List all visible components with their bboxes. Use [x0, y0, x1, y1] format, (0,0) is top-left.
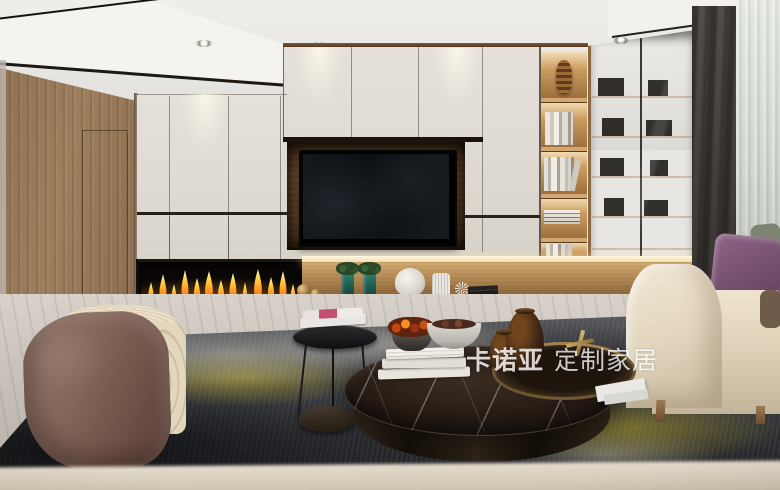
glass-reflection — [588, 30, 695, 265]
vase-plant — [358, 262, 381, 275]
downlight-cone — [286, 47, 352, 147]
cabinet-door-seam — [351, 47, 352, 138]
television — [299, 150, 457, 247]
brand-watermark: 卡诺亚定制家居 — [466, 341, 658, 377]
bookshelf-compartment — [541, 102, 587, 147]
sofa-leg — [655, 400, 665, 422]
vase-plant — [336, 262, 359, 275]
white-ribbed-vase — [432, 273, 450, 296]
decor-twist-ornament — [556, 60, 572, 94]
tv-screen — [303, 154, 449, 239]
shelf-board — [541, 194, 587, 199]
armchair-shell — [21, 309, 172, 470]
side-table-base — [298, 406, 356, 432]
recessed-downlight — [196, 40, 212, 47]
stacked-books — [544, 210, 580, 224]
shelf-board — [541, 98, 587, 103]
cabinet-door-seam — [482, 47, 483, 252]
shelf-board — [541, 238, 587, 243]
brown-pillow — [760, 290, 780, 328]
watermark-brand: 卡诺亚 — [466, 347, 544, 375]
glass-display-cabinet — [588, 30, 695, 265]
hidden-door-seam — [82, 130, 128, 131]
cabinet-door-seam — [169, 216, 170, 260]
sofa-leg — [756, 406, 765, 424]
bookshelf-compartment — [541, 52, 587, 98]
living-room-render: 卡诺亚定制家居 — [0, 0, 780, 490]
shelf-board — [541, 147, 587, 152]
cabinet-door-seam — [283, 47, 284, 138]
open-bookshelf — [541, 52, 587, 268]
books-row — [545, 112, 573, 145]
watermark-suffix: 定制家居 — [554, 347, 658, 375]
cabinet-door-seam — [418, 47, 419, 138]
white-sculpture-vase — [395, 268, 425, 296]
cabinet-groove — [137, 212, 287, 215]
cabinet-door-seam — [280, 96, 281, 259]
side-table-top — [293, 325, 377, 349]
cabinet-groove — [465, 215, 540, 218]
bowl-contents — [432, 319, 476, 329]
cabinet-door-seam — [228, 216, 229, 260]
downlight-cone — [424, 48, 490, 148]
jar-lip — [496, 329, 512, 335]
wall-corner-strip — [0, 60, 6, 332]
jar-lip — [515, 308, 535, 314]
